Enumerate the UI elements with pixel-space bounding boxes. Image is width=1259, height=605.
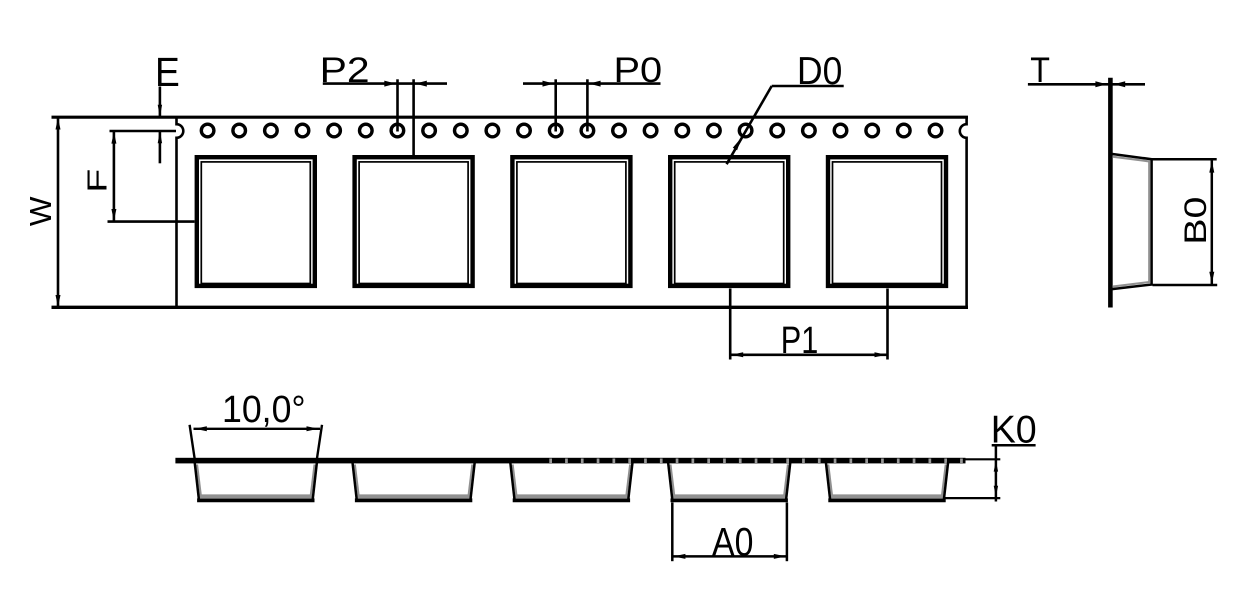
- svg-text:F: F: [81, 169, 112, 193]
- svg-text:10,0°: 10,0°: [222, 388, 306, 430]
- svg-text:A0: A0: [712, 521, 753, 565]
- svg-text:B0: B0: [1178, 197, 1213, 245]
- svg-text:W: W: [23, 196, 58, 226]
- svg-text:P1: P1: [781, 320, 819, 362]
